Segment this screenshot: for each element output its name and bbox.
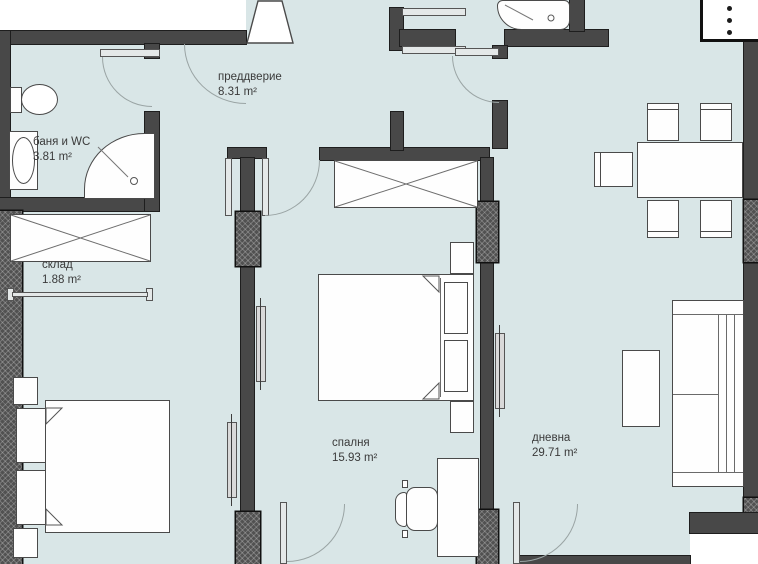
outside-area-bottom-right [690, 533, 758, 564]
dining-chair [647, 200, 679, 238]
bedroom-balcony-door-swing [287, 504, 345, 562]
room-name: преддверие [218, 70, 282, 85]
radiator-line [231, 414, 232, 506]
chair-back [700, 103, 732, 110]
radiator-bedroom [256, 306, 266, 382]
dining-chair [700, 200, 732, 238]
entrance-door-icon [246, 0, 294, 44]
room-area: 8.31 m² [218, 85, 282, 100]
sofa [672, 300, 744, 487]
shaft-dot-icon [727, 6, 732, 11]
radiator-bedroom-left [227, 422, 237, 498]
room-label-living: дневна 29.71 m² [532, 431, 577, 461]
wall-living-bottom [519, 556, 690, 564]
wall-shower-room-frame [570, 0, 584, 31]
room-label-storage: склад 1.88 m² [42, 258, 81, 288]
coffee-table [622, 350, 660, 427]
bedroom-balcony-door-leaf [280, 502, 287, 564]
sofa-back-line [726, 314, 727, 473]
bedroom-door-swing [265, 160, 320, 216]
room-area: 29.71 m² [532, 446, 577, 461]
room-area: 3.81 m² [33, 150, 90, 165]
office-chair-armrest [402, 480, 408, 488]
bathroom-door-leaf [100, 49, 160, 57]
floor-plan: преддверие 8.31 m² баня и WC 3.81 m² скл… [0, 0, 758, 564]
radiator-line [499, 325, 500, 417]
pier-bedroom-living-upper [477, 202, 498, 262]
pier-bedroom-living-lower [477, 510, 498, 564]
wall-bathroom-bottom [0, 198, 159, 211]
shower-top-glyph [497, 0, 570, 30]
room-name: баня и WC [33, 135, 90, 150]
wardrobe-vestibule-x [334, 160, 478, 208]
bed-pillow [16, 470, 46, 525]
wall-top-center-left [400, 30, 455, 46]
pier-middle-lower [236, 512, 260, 564]
living-door-swing [452, 56, 499, 103]
storage-sliding-door [12, 292, 148, 297]
wall-stub-vestibule [391, 112, 403, 150]
room-area: 1.88 m² [42, 273, 81, 288]
nightstand [450, 242, 474, 274]
bed-fold-marks [45, 400, 170, 533]
dining-table [637, 142, 743, 198]
office-chair-armrest [402, 530, 408, 538]
sofa-armrest-line [673, 472, 743, 473]
wall-corner-bottom-right [690, 513, 758, 533]
room-name: спалня [332, 436, 377, 451]
wall-top-center-right [505, 30, 608, 46]
dining-chair [700, 103, 732, 141]
radiator-line [260, 298, 261, 390]
living-balcony-door-swing [520, 504, 578, 562]
chair-back [594, 152, 601, 187]
outside-area-top-left [0, 0, 246, 31]
room-name: дневна [532, 431, 577, 446]
door-jamb-left [225, 158, 232, 216]
shaft-dot-icon [727, 18, 732, 23]
living-balcony-door-leaf [513, 502, 520, 564]
chair-back [700, 231, 732, 238]
wall-vestibule-south [320, 148, 489, 160]
sofa-back-line [734, 314, 735, 473]
shaft-dot-icon [727, 30, 732, 35]
room-label-bedroom: спалня 15.93 m² [332, 436, 377, 466]
utility-shaft [700, 0, 758, 42]
dining-chair [594, 152, 633, 187]
room-name: склад [42, 258, 81, 273]
toilet-bowl [21, 84, 58, 115]
sliding-door-rail-top [402, 8, 466, 16]
wall-east-lower-stub [493, 101, 507, 148]
desk [437, 458, 479, 557]
nightstand [13, 377, 38, 405]
chair-back [647, 231, 679, 238]
office-chair-back [395, 492, 407, 527]
room-label-vestibule: преддверие 8.31 m² [218, 70, 282, 100]
radiator-living [495, 333, 505, 409]
room-label-bathroom: баня и WC 3.81 m² [33, 135, 90, 165]
sofa-back-line [718, 314, 719, 473]
pier-middle-upper [236, 212, 260, 266]
wall-middle-cap [228, 148, 266, 158]
sofa-armrest-line [673, 314, 743, 315]
sofa-seat-divider [673, 394, 718, 395]
bathroom-door-swing [102, 57, 152, 107]
office-chair-seat [406, 487, 438, 531]
bed-fold-marks [318, 274, 474, 401]
wall-right-outer [744, 42, 758, 532]
chair-back [647, 103, 679, 110]
nightstand [13, 528, 38, 558]
room-area: 15.93 m² [332, 451, 377, 466]
wardrobe-storage-x [10, 214, 151, 262]
living-door-leaf [455, 48, 499, 56]
wall-top-entry [0, 31, 246, 44]
bed-pillow [16, 408, 46, 463]
pier-right-upper [744, 200, 758, 262]
nightstand [450, 401, 474, 433]
sink-basin [12, 137, 35, 184]
shower-glyph [84, 133, 155, 199]
dining-chair [647, 103, 679, 141]
